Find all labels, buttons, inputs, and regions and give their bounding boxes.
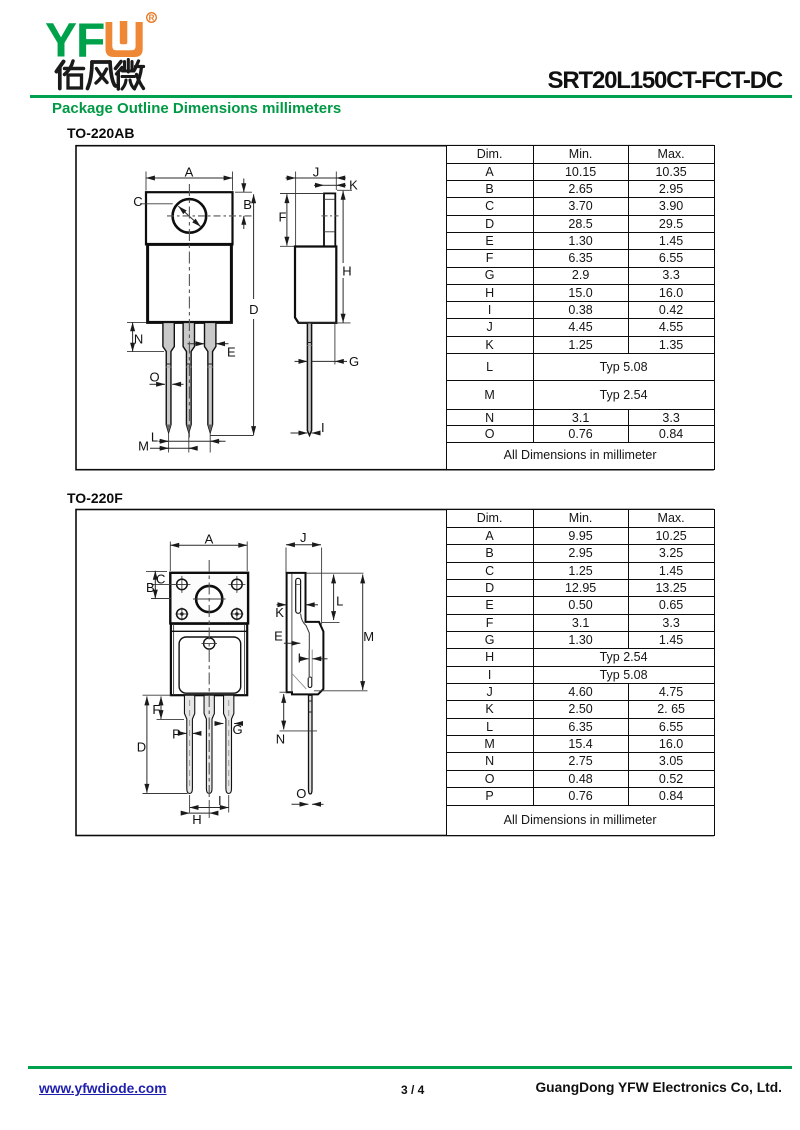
svg-text:J: J [313, 165, 320, 180]
svg-text:F: F [279, 210, 287, 225]
svg-text:R: R [149, 14, 155, 23]
svg-text:N: N [134, 332, 143, 347]
svg-text:L: L [151, 430, 158, 445]
svg-text:G: G [349, 354, 359, 369]
svg-text:I: I [321, 420, 325, 435]
svg-text:N: N [276, 731, 285, 746]
svg-text:C: C [156, 571, 165, 586]
svg-text:E: E [227, 345, 236, 360]
svg-text:O: O [296, 786, 306, 801]
svg-text:F: F [152, 702, 160, 717]
svg-text:B: B [146, 580, 155, 595]
svg-text:C: C [133, 194, 142, 209]
svg-text:M: M [138, 439, 149, 454]
svg-text:YF: YF [45, 15, 104, 68]
svg-text:D: D [137, 739, 146, 754]
svg-text:L: L [336, 593, 343, 608]
svg-text:O: O [149, 370, 159, 385]
svg-text:H: H [192, 812, 201, 827]
svg-text:H: H [342, 264, 351, 279]
svg-text:G: G [233, 722, 243, 737]
svg-text:E: E [274, 629, 283, 644]
svg-text:K: K [275, 605, 284, 620]
svg-text:M: M [363, 629, 374, 644]
svg-text:J: J [300, 530, 307, 545]
svg-text:D: D [249, 302, 258, 317]
svg-text:I: I [297, 650, 301, 665]
svg-text:P: P [172, 726, 181, 741]
svg-text:B: B [243, 197, 252, 212]
svg-text:A: A [205, 532, 214, 547]
svg-text:A: A [185, 165, 194, 180]
svg-text:I: I [218, 793, 222, 808]
